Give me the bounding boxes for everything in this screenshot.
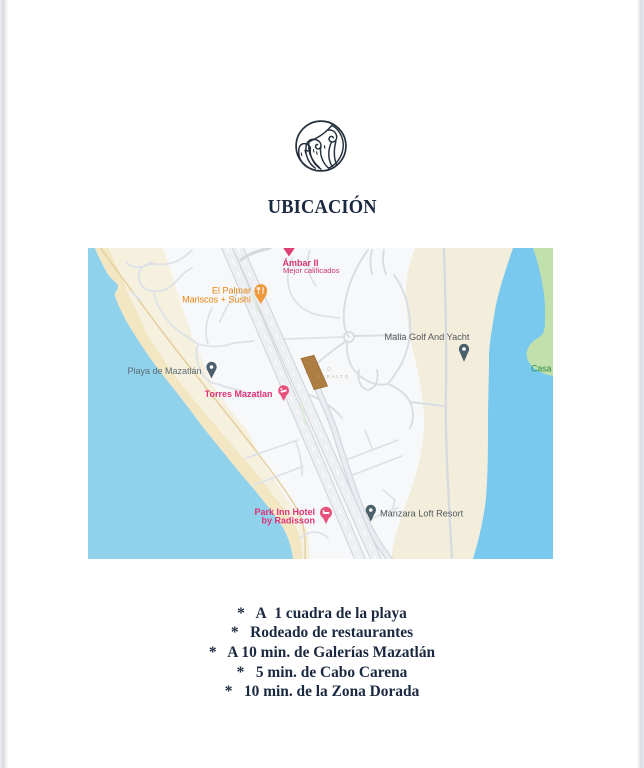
- svg-text:Torres Mazatlan: Torres Mazatlan: [205, 389, 273, 399]
- svg-text:Malia Golf And Yacht: Malia Golf And Yacht: [385, 332, 470, 342]
- svg-text:MARALTO: MARALTO: [317, 374, 350, 379]
- svg-text:Casa: Casa: [531, 364, 552, 374]
- svg-text:Manzara Loft Resort: Manzara Loft Resort: [380, 509, 464, 519]
- svg-text:Mariscos + Sushi: Mariscos + Sushi: [182, 295, 251, 305]
- svg-text:by Radisson: by Radisson: [261, 515, 315, 525]
- svg-text:Mejor calificados: Mejor calificados: [283, 266, 340, 275]
- svg-text:Playa de Mazatlán: Playa de Mazatlán: [127, 366, 201, 376]
